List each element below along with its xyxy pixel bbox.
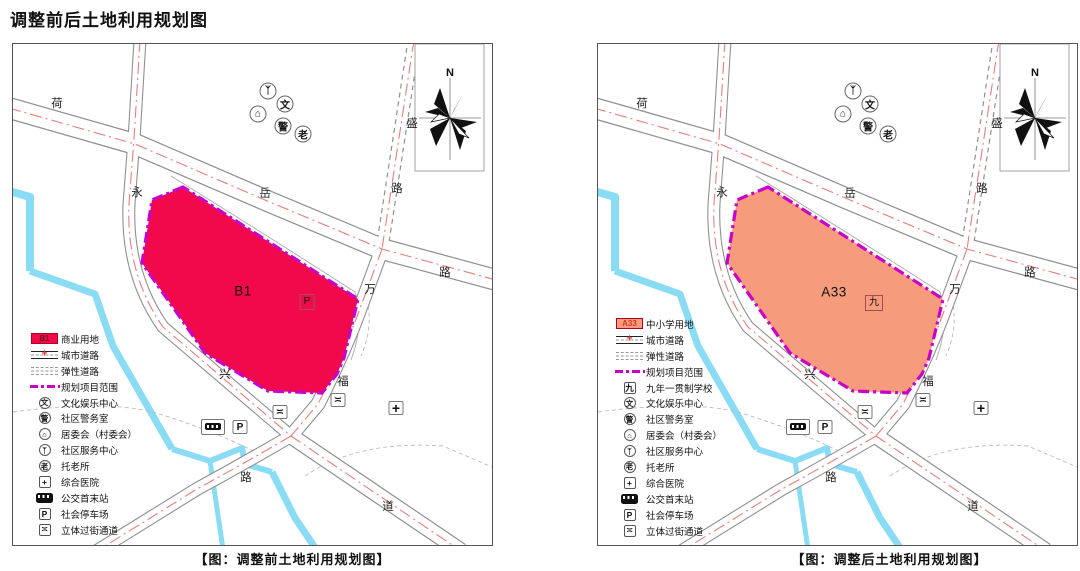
zone-label-before: B1	[234, 284, 252, 299]
legend-row: 公交首末站	[28, 490, 137, 506]
road-label: 道	[967, 498, 979, 514]
community-service-icon: ᛉ	[260, 83, 277, 100]
legend-label: 托老所	[646, 460, 675, 474]
bus-terminal-icon	[201, 419, 225, 435]
overpass-icon: ≍	[613, 525, 646, 537]
legend-label: 公交首末站	[61, 491, 109, 505]
overpass-icon: ≍	[39, 524, 51, 536]
overpass-icon: ≍	[331, 393, 346, 407]
legend-label: 城市道路	[646, 333, 684, 347]
commercial-land-swatch: B1	[28, 333, 61, 344]
legend-row: 弹性道路	[613, 348, 722, 364]
police-icon: 警	[624, 413, 636, 425]
road-label: 福	[337, 373, 349, 389]
road-label: 兴	[219, 366, 231, 382]
school-land-swatch: A33	[616, 318, 643, 329]
legend-row: A33中小学用地	[613, 316, 722, 332]
culture-icon: 文	[28, 397, 61, 409]
road-label: 路	[439, 264, 451, 280]
parking-icon: P	[613, 509, 646, 521]
culture-icon: 文	[624, 397, 636, 409]
legend-row: 规划项目范围	[613, 364, 722, 380]
overpass-icon: ≍	[916, 393, 931, 407]
hospital-icon: +	[624, 477, 636, 489]
legend-row: ≍立体过街通道	[613, 523, 722, 539]
road-label: 盛	[991, 115, 1003, 131]
elderly-care-icon: 老	[880, 126, 897, 143]
road-label: 永	[716, 184, 728, 200]
caption-after: 【图：调整后土地利用规划图】	[637, 549, 1080, 568]
committee-icon: ⌂	[250, 106, 267, 123]
road-label: 兴	[804, 366, 816, 382]
overpass-icon: ≍	[28, 524, 61, 536]
legend-row: 公交首末站	[613, 491, 722, 507]
road-label: 岳	[844, 185, 856, 201]
bus-terminal-icon	[613, 494, 646, 504]
bus-terminal-icon	[621, 494, 638, 504]
road-label: 路	[825, 469, 837, 485]
school-land-swatch: A33	[613, 318, 646, 329]
bus-terminal-icon	[786, 419, 810, 435]
legend-label: 综合医院	[646, 476, 684, 490]
community-service-icon: ᛉ	[39, 444, 51, 456]
legend-label: 社区警务室	[646, 412, 694, 426]
legend-row: P社会停车场	[613, 507, 722, 523]
road-label: 路	[240, 469, 252, 485]
legend-label: 弹性道路	[646, 349, 684, 363]
legend-label: 九年一贯制学校	[646, 381, 713, 395]
road-label: 荷	[51, 95, 63, 111]
road-label: 道	[382, 498, 394, 514]
legend-row: 规划项目范围	[28, 379, 137, 395]
zone-tag-parking: P	[300, 294, 315, 310]
legend-after: A33中小学用地城市道路弹性道路规划项目范围九九年一贯制学校文文化娱乐中心警社区…	[613, 316, 722, 538]
map-after-panel: N 荷永岳盛路万路兴福路道 ᛉ文⌂警老≍≍+P A33 九 A33中小学用地城市…	[597, 43, 1078, 546]
nine-year-school-icon: 九	[624, 382, 636, 394]
legend-label: 居委会（村委会）	[646, 428, 722, 442]
road-label: 福	[922, 373, 934, 389]
north-label: N	[1031, 67, 1039, 79]
bus-terminal-icon	[28, 493, 61, 503]
elderly-care-icon: 老	[295, 126, 312, 143]
legend-row: 老托老所	[28, 458, 137, 474]
road-label: 岳	[259, 185, 271, 201]
parking-icon: P	[818, 420, 833, 434]
hospital-icon: +	[613, 477, 646, 489]
culture-icon: 文	[862, 96, 879, 113]
legend-row: 警社区警务室	[28, 410, 137, 426]
overpass-icon: ≍	[858, 405, 873, 419]
bus-terminal-icon	[36, 493, 53, 503]
legend-row: 弹性道路	[28, 363, 137, 379]
legend-label: 社区警务室	[61, 411, 109, 425]
legend-label: 中小学用地	[646, 317, 694, 331]
flexible-road-symbol	[616, 352, 643, 360]
road-label: 路	[976, 180, 988, 196]
legend-row: P社会停车场	[28, 506, 137, 522]
legend-row: +综合医院	[613, 475, 722, 491]
page-title: 调整前后土地利用规划图	[10, 6, 208, 31]
parking-icon: P	[28, 508, 61, 520]
city-road-symbol	[28, 351, 61, 359]
road-label: 永	[131, 184, 143, 200]
committee-icon: ⌂	[613, 429, 646, 441]
hospital-icon: +	[28, 476, 61, 488]
legend-row: ⌂居委会（村委会）	[613, 427, 722, 443]
legend-label: 社会停车场	[61, 507, 109, 521]
parking-icon: P	[233, 420, 248, 434]
commercial-land-swatch: B1	[31, 333, 58, 344]
project-boundary-symbol	[30, 385, 60, 388]
committee-icon: ⌂	[835, 106, 852, 123]
project-boundary-symbol	[613, 370, 646, 373]
road-label: 万	[949, 281, 961, 297]
police-icon: 警	[613, 413, 646, 425]
parking-icon: P	[39, 508, 51, 520]
legend-row: +综合医院	[28, 474, 137, 490]
legend-label: 立体过街通道	[61, 523, 118, 537]
legend-label: 社会停车场	[646, 508, 694, 522]
committee-icon: ⌂	[39, 428, 51, 440]
legend-label: 托老所	[61, 459, 90, 473]
culture-icon: 文	[39, 397, 51, 409]
legend-label: 综合医院	[61, 475, 99, 489]
legend-before: B1商业用地城市道路弹性道路规划项目范围文文化娱乐中心警社区警务室⌂居委会（村委…	[28, 331, 137, 538]
police-icon: 警	[275, 118, 292, 135]
culture-icon: 文	[277, 96, 294, 113]
legend-row: B1商业用地	[28, 331, 137, 347]
road-label: 荷	[636, 95, 648, 111]
legend-label: 立体过街通道	[646, 524, 703, 538]
map-before-panel: N 荷永岳盛路万路兴福路道 ᛉ文⌂警老≍≍+P B1 P B1商业用地城市道路弹…	[12, 43, 493, 546]
caption-before: 【图：调整前土地利用规划图】	[40, 549, 545, 568]
zone-tag-school: 九	[865, 295, 883, 311]
legend-row: 城市道路	[613, 332, 722, 348]
legend-label: 城市道路	[61, 348, 99, 362]
legend-row: ᛉ社区服务中心	[613, 443, 722, 459]
police-icon: 警	[860, 118, 877, 135]
zone-label-after: A33	[821, 285, 847, 300]
elderly-care-icon: 老	[624, 461, 636, 473]
overpass-icon: ≍	[273, 405, 288, 419]
legend-label: 公交首末站	[646, 492, 694, 506]
elderly-care-icon: 老	[613, 461, 646, 473]
flexible-road-symbol	[613, 352, 646, 360]
committee-icon: ⌂	[624, 429, 636, 441]
north-label: N	[446, 67, 454, 79]
legend-row: ≍立体过街通道	[28, 522, 137, 538]
legend-row: 九九年一贯制学校	[613, 380, 722, 396]
legend-label: 居委会（村委会）	[61, 427, 137, 441]
legend-row: 老托老所	[613, 459, 722, 475]
committee-icon: ⌂	[28, 428, 61, 440]
legend-label: 文化娱乐中心	[61, 396, 118, 410]
police-icon: 警	[39, 412, 51, 424]
community-service-icon: ᛉ	[624, 445, 636, 457]
nine-year-school-icon: 九	[613, 382, 646, 394]
legend-label: 文化娱乐中心	[646, 396, 703, 410]
legend-label: 社区服务中心	[61, 443, 118, 457]
city-road-symbol	[616, 336, 643, 344]
flexible-road-symbol	[28, 367, 61, 375]
road-label: 路	[391, 180, 403, 196]
legend-label: 社区服务中心	[646, 444, 703, 458]
police-icon: 警	[28, 412, 61, 424]
project-boundary-symbol	[28, 385, 61, 388]
legend-label: 商业用地	[61, 332, 99, 346]
legend-row: ᛉ社区服务中心	[28, 442, 137, 458]
community-service-icon: ᛉ	[613, 445, 646, 457]
road-label: 路	[1024, 264, 1036, 280]
hospital-icon: +	[974, 401, 989, 415]
legend-label: 规划项目范围	[61, 380, 118, 394]
legend-row: ⌂居委会（村委会）	[28, 426, 137, 442]
legend-row: 城市道路	[28, 347, 137, 363]
parking-icon: P	[624, 509, 636, 521]
legend-row: 文文化娱乐中心	[613, 395, 722, 411]
overpass-icon: ≍	[624, 525, 636, 537]
project-boundary-symbol	[615, 370, 645, 373]
legend-label: 规划项目范围	[646, 365, 703, 379]
elderly-care-icon: 老	[28, 460, 61, 472]
road-label: 盛	[406, 115, 418, 131]
flexible-road-symbol	[31, 367, 58, 375]
community-service-icon: ᛉ	[28, 444, 61, 456]
culture-icon: 文	[613, 397, 646, 409]
legend-label: 弹性道路	[61, 364, 99, 378]
community-service-icon: ᛉ	[845, 83, 862, 100]
hospital-icon: +	[389, 401, 404, 415]
legend-row: 警社区警务室	[613, 411, 722, 427]
legend-row: 文文化娱乐中心	[28, 395, 137, 411]
city-road-symbol	[31, 351, 58, 359]
hospital-icon: +	[39, 476, 51, 488]
road-label: 万	[364, 281, 376, 297]
elderly-care-icon: 老	[39, 460, 51, 472]
city-road-symbol	[613, 336, 646, 344]
